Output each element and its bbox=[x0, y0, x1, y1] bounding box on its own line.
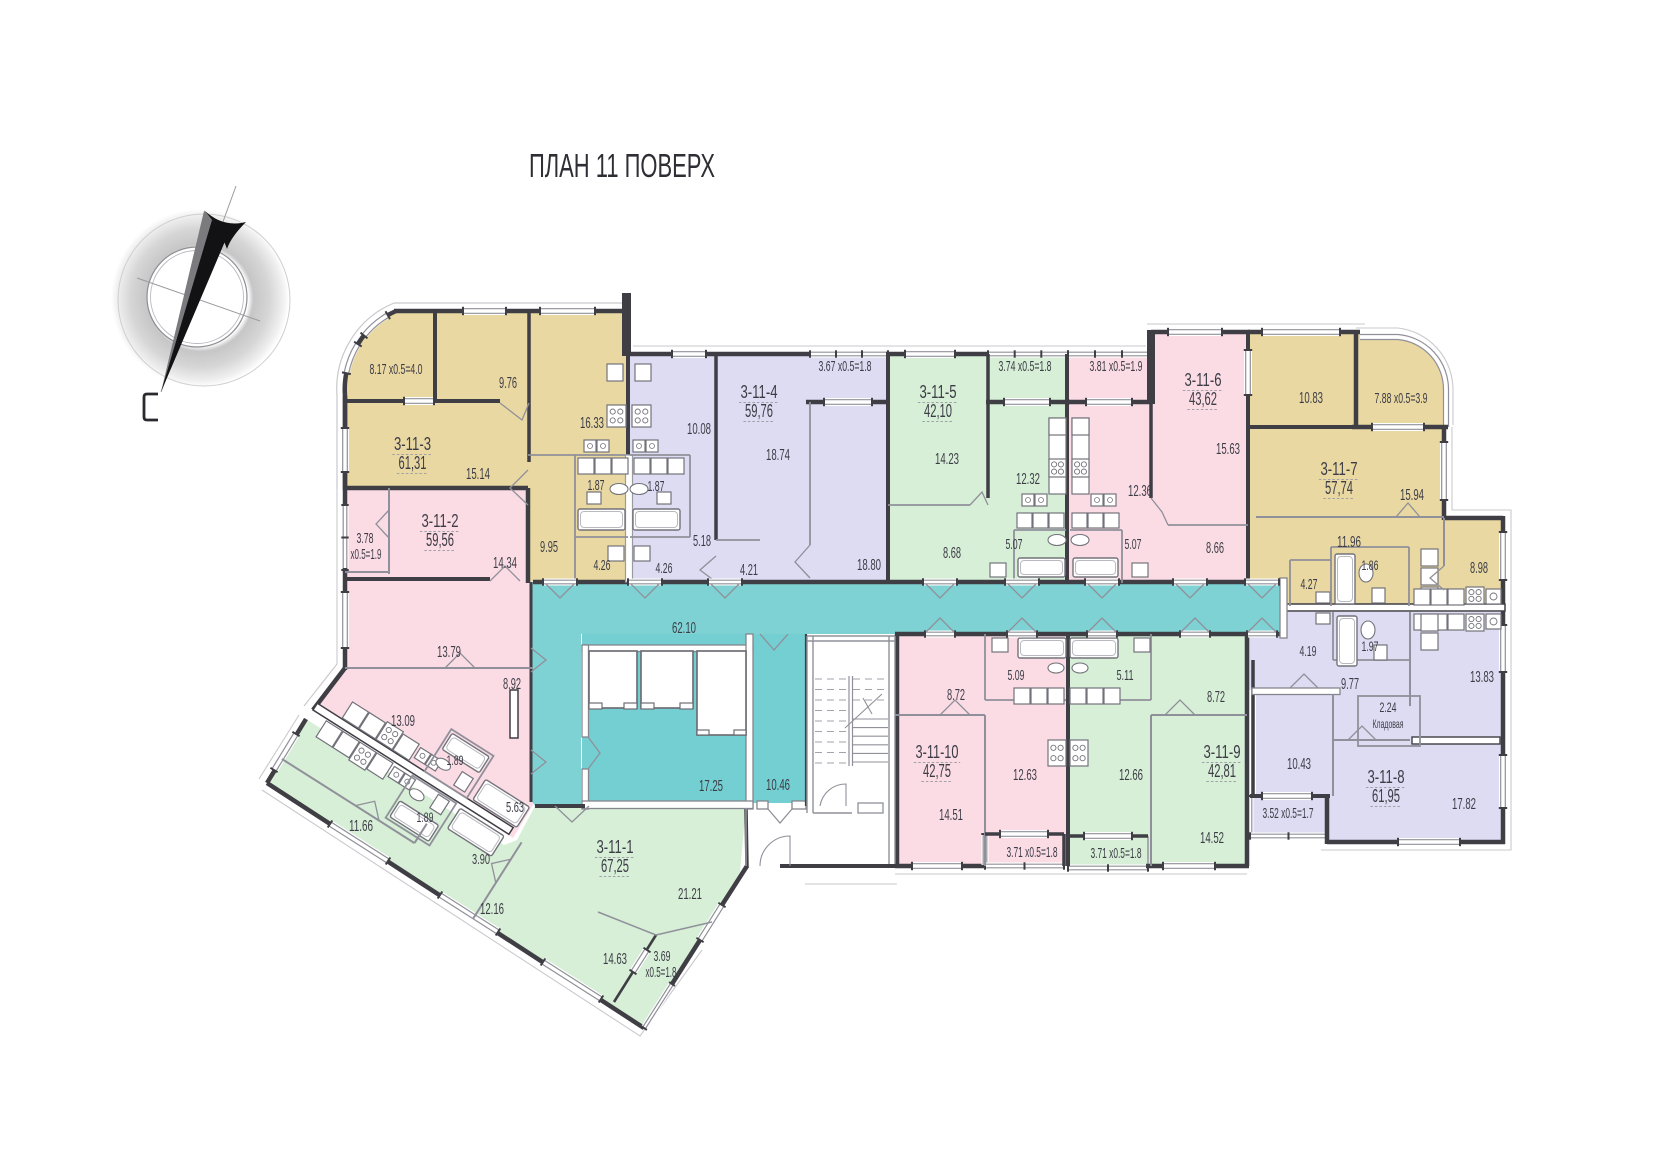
svg-text:3.67 x0.5=1.8: 3.67 x0.5=1.8 bbox=[819, 358, 872, 375]
svg-text:61,95: 61,95 bbox=[1372, 785, 1400, 806]
svg-text:3-11-1: 3-11-1 bbox=[597, 836, 634, 857]
svg-text:13.83: 13.83 bbox=[1470, 669, 1494, 686]
svg-text:8.72: 8.72 bbox=[1207, 689, 1225, 706]
svg-text:12.32: 12.32 bbox=[1016, 471, 1040, 488]
svg-text:7.88 x0.5=3.9: 7.88 x0.5=3.9 bbox=[1375, 390, 1428, 407]
svg-text:9.95: 9.95 bbox=[540, 539, 558, 556]
svg-text:10.46: 10.46 bbox=[766, 777, 790, 794]
svg-text:3.71 x0.5=1.8: 3.71 x0.5=1.8 bbox=[1007, 845, 1058, 861]
svg-text:1.97: 1.97 bbox=[1362, 638, 1379, 654]
svg-text:14.51: 14.51 bbox=[939, 807, 963, 824]
svg-text:3.52 x0.5=1.7: 3.52 x0.5=1.7 bbox=[1263, 806, 1314, 822]
svg-text:14.63: 14.63 bbox=[603, 951, 627, 968]
svg-text:1.89: 1.89 bbox=[447, 752, 464, 768]
svg-text:5.18: 5.18 bbox=[693, 533, 711, 550]
svg-text:62.10: 62.10 bbox=[672, 620, 696, 637]
svg-text:9.76: 9.76 bbox=[499, 375, 517, 392]
svg-text:17.25: 17.25 bbox=[699, 778, 723, 795]
svg-text:8.72: 8.72 bbox=[947, 687, 965, 704]
svg-text:8.17 x0.5=4.0: 8.17 x0.5=4.0 bbox=[370, 361, 423, 378]
svg-text:42,10: 42,10 bbox=[924, 400, 952, 421]
svg-text:14.34: 14.34 bbox=[493, 555, 517, 572]
svg-text:3-11-7: 3-11-7 bbox=[1321, 458, 1358, 479]
svg-text:x0.5=1.8: x0.5=1.8 bbox=[646, 965, 677, 981]
svg-text:3.69: 3.69 bbox=[654, 949, 671, 965]
svg-text:10.83: 10.83 bbox=[1299, 390, 1323, 407]
svg-text:67,25: 67,25 bbox=[601, 855, 629, 876]
svg-text:43,62: 43,62 bbox=[1189, 388, 1217, 409]
svg-text:42,75: 42,75 bbox=[923, 760, 951, 781]
svg-text:16.33: 16.33 bbox=[580, 415, 604, 432]
svg-text:3-11-9: 3-11-9 bbox=[1204, 741, 1241, 762]
svg-text:2.24: 2.24 bbox=[1380, 699, 1397, 715]
svg-text:3-11-3: 3-11-3 bbox=[394, 433, 431, 454]
svg-text:15.63: 15.63 bbox=[1216, 441, 1240, 458]
svg-text:1.89: 1.89 bbox=[417, 809, 434, 825]
svg-text:4.27: 4.27 bbox=[1301, 577, 1318, 593]
svg-text:3-11-6: 3-11-6 bbox=[1185, 369, 1222, 390]
svg-text:3.71 x0.5=1.8: 3.71 x0.5=1.8 bbox=[1091, 846, 1142, 862]
svg-text:18.74: 18.74 bbox=[766, 447, 790, 464]
svg-text:8.68: 8.68 bbox=[943, 545, 961, 562]
svg-text:4.26: 4.26 bbox=[594, 558, 611, 574]
svg-text:5.11: 5.11 bbox=[1117, 668, 1134, 684]
svg-text:11.66: 11.66 bbox=[349, 818, 373, 835]
svg-text:15.94: 15.94 bbox=[1400, 487, 1424, 504]
svg-text:9.77: 9.77 bbox=[1341, 676, 1359, 693]
svg-text:3-11-8: 3-11-8 bbox=[1368, 766, 1405, 787]
svg-text:8.66: 8.66 bbox=[1206, 540, 1224, 557]
svg-text:18.80: 18.80 bbox=[857, 557, 881, 574]
svg-text:14.23: 14.23 bbox=[935, 451, 959, 468]
svg-text:13.09: 13.09 bbox=[391, 713, 415, 730]
svg-text:3.90: 3.90 bbox=[472, 851, 490, 868]
svg-text:61,31: 61,31 bbox=[399, 452, 427, 473]
svg-text:1.86: 1.86 bbox=[1362, 557, 1379, 573]
svg-text:12.63: 12.63 bbox=[1013, 767, 1037, 784]
svg-text:42,81: 42,81 bbox=[1208, 760, 1236, 781]
svg-text:12.36: 12.36 bbox=[1128, 483, 1152, 500]
svg-text:Кладовая: Кладовая bbox=[1373, 719, 1404, 731]
svg-text:17.82: 17.82 bbox=[1452, 796, 1476, 813]
svg-text:3-11-4: 3-11-4 bbox=[741, 381, 778, 402]
svg-text:3.78: 3.78 bbox=[357, 531, 374, 547]
svg-text:1.87: 1.87 bbox=[648, 479, 665, 495]
svg-text:4.19: 4.19 bbox=[1300, 644, 1317, 660]
svg-text:10.08: 10.08 bbox=[687, 421, 711, 438]
svg-text:3-11-10: 3-11-10 bbox=[916, 741, 959, 762]
svg-text:3.74 x0.5=1.8: 3.74 x0.5=1.8 bbox=[999, 358, 1052, 375]
svg-text:3-11-5: 3-11-5 bbox=[920, 381, 957, 402]
svg-text:4.26: 4.26 bbox=[656, 561, 673, 577]
svg-text:5.63: 5.63 bbox=[506, 799, 524, 816]
svg-text:21.21: 21.21 bbox=[678, 886, 702, 903]
svg-text:3.81 x0.5=1.9: 3.81 x0.5=1.9 bbox=[1090, 358, 1143, 375]
svg-text:11.96: 11.96 bbox=[1337, 534, 1361, 551]
svg-text:59,76: 59,76 bbox=[745, 400, 773, 421]
svg-text:12.16: 12.16 bbox=[480, 901, 504, 918]
svg-text:12.66: 12.66 bbox=[1119, 767, 1143, 784]
svg-text:8.98: 8.98 bbox=[1470, 560, 1488, 577]
svg-text:14.52: 14.52 bbox=[1200, 830, 1224, 847]
svg-text:10.43: 10.43 bbox=[1287, 756, 1311, 773]
svg-text:5.07: 5.07 bbox=[1006, 537, 1023, 553]
svg-text:3-11-2: 3-11-2 bbox=[422, 510, 459, 531]
svg-text:5.09: 5.09 bbox=[1008, 668, 1025, 684]
svg-text:13.79: 13.79 bbox=[437, 644, 461, 661]
svg-text:5.07: 5.07 bbox=[1125, 537, 1142, 553]
svg-text:15.14: 15.14 bbox=[466, 466, 490, 483]
svg-text:57,74: 57,74 bbox=[1325, 477, 1353, 498]
svg-text:x0.5=1.9: x0.5=1.9 bbox=[351, 547, 382, 563]
svg-text:8.92: 8.92 bbox=[503, 676, 521, 693]
svg-text:1.87: 1.87 bbox=[588, 478, 605, 494]
svg-text:4.21: 4.21 bbox=[740, 562, 758, 579]
svg-text:ПЛАН 11 ПОВЕРХ: ПЛАН 11 ПОВЕРХ bbox=[529, 147, 715, 184]
svg-text:59,56: 59,56 bbox=[426, 529, 454, 550]
